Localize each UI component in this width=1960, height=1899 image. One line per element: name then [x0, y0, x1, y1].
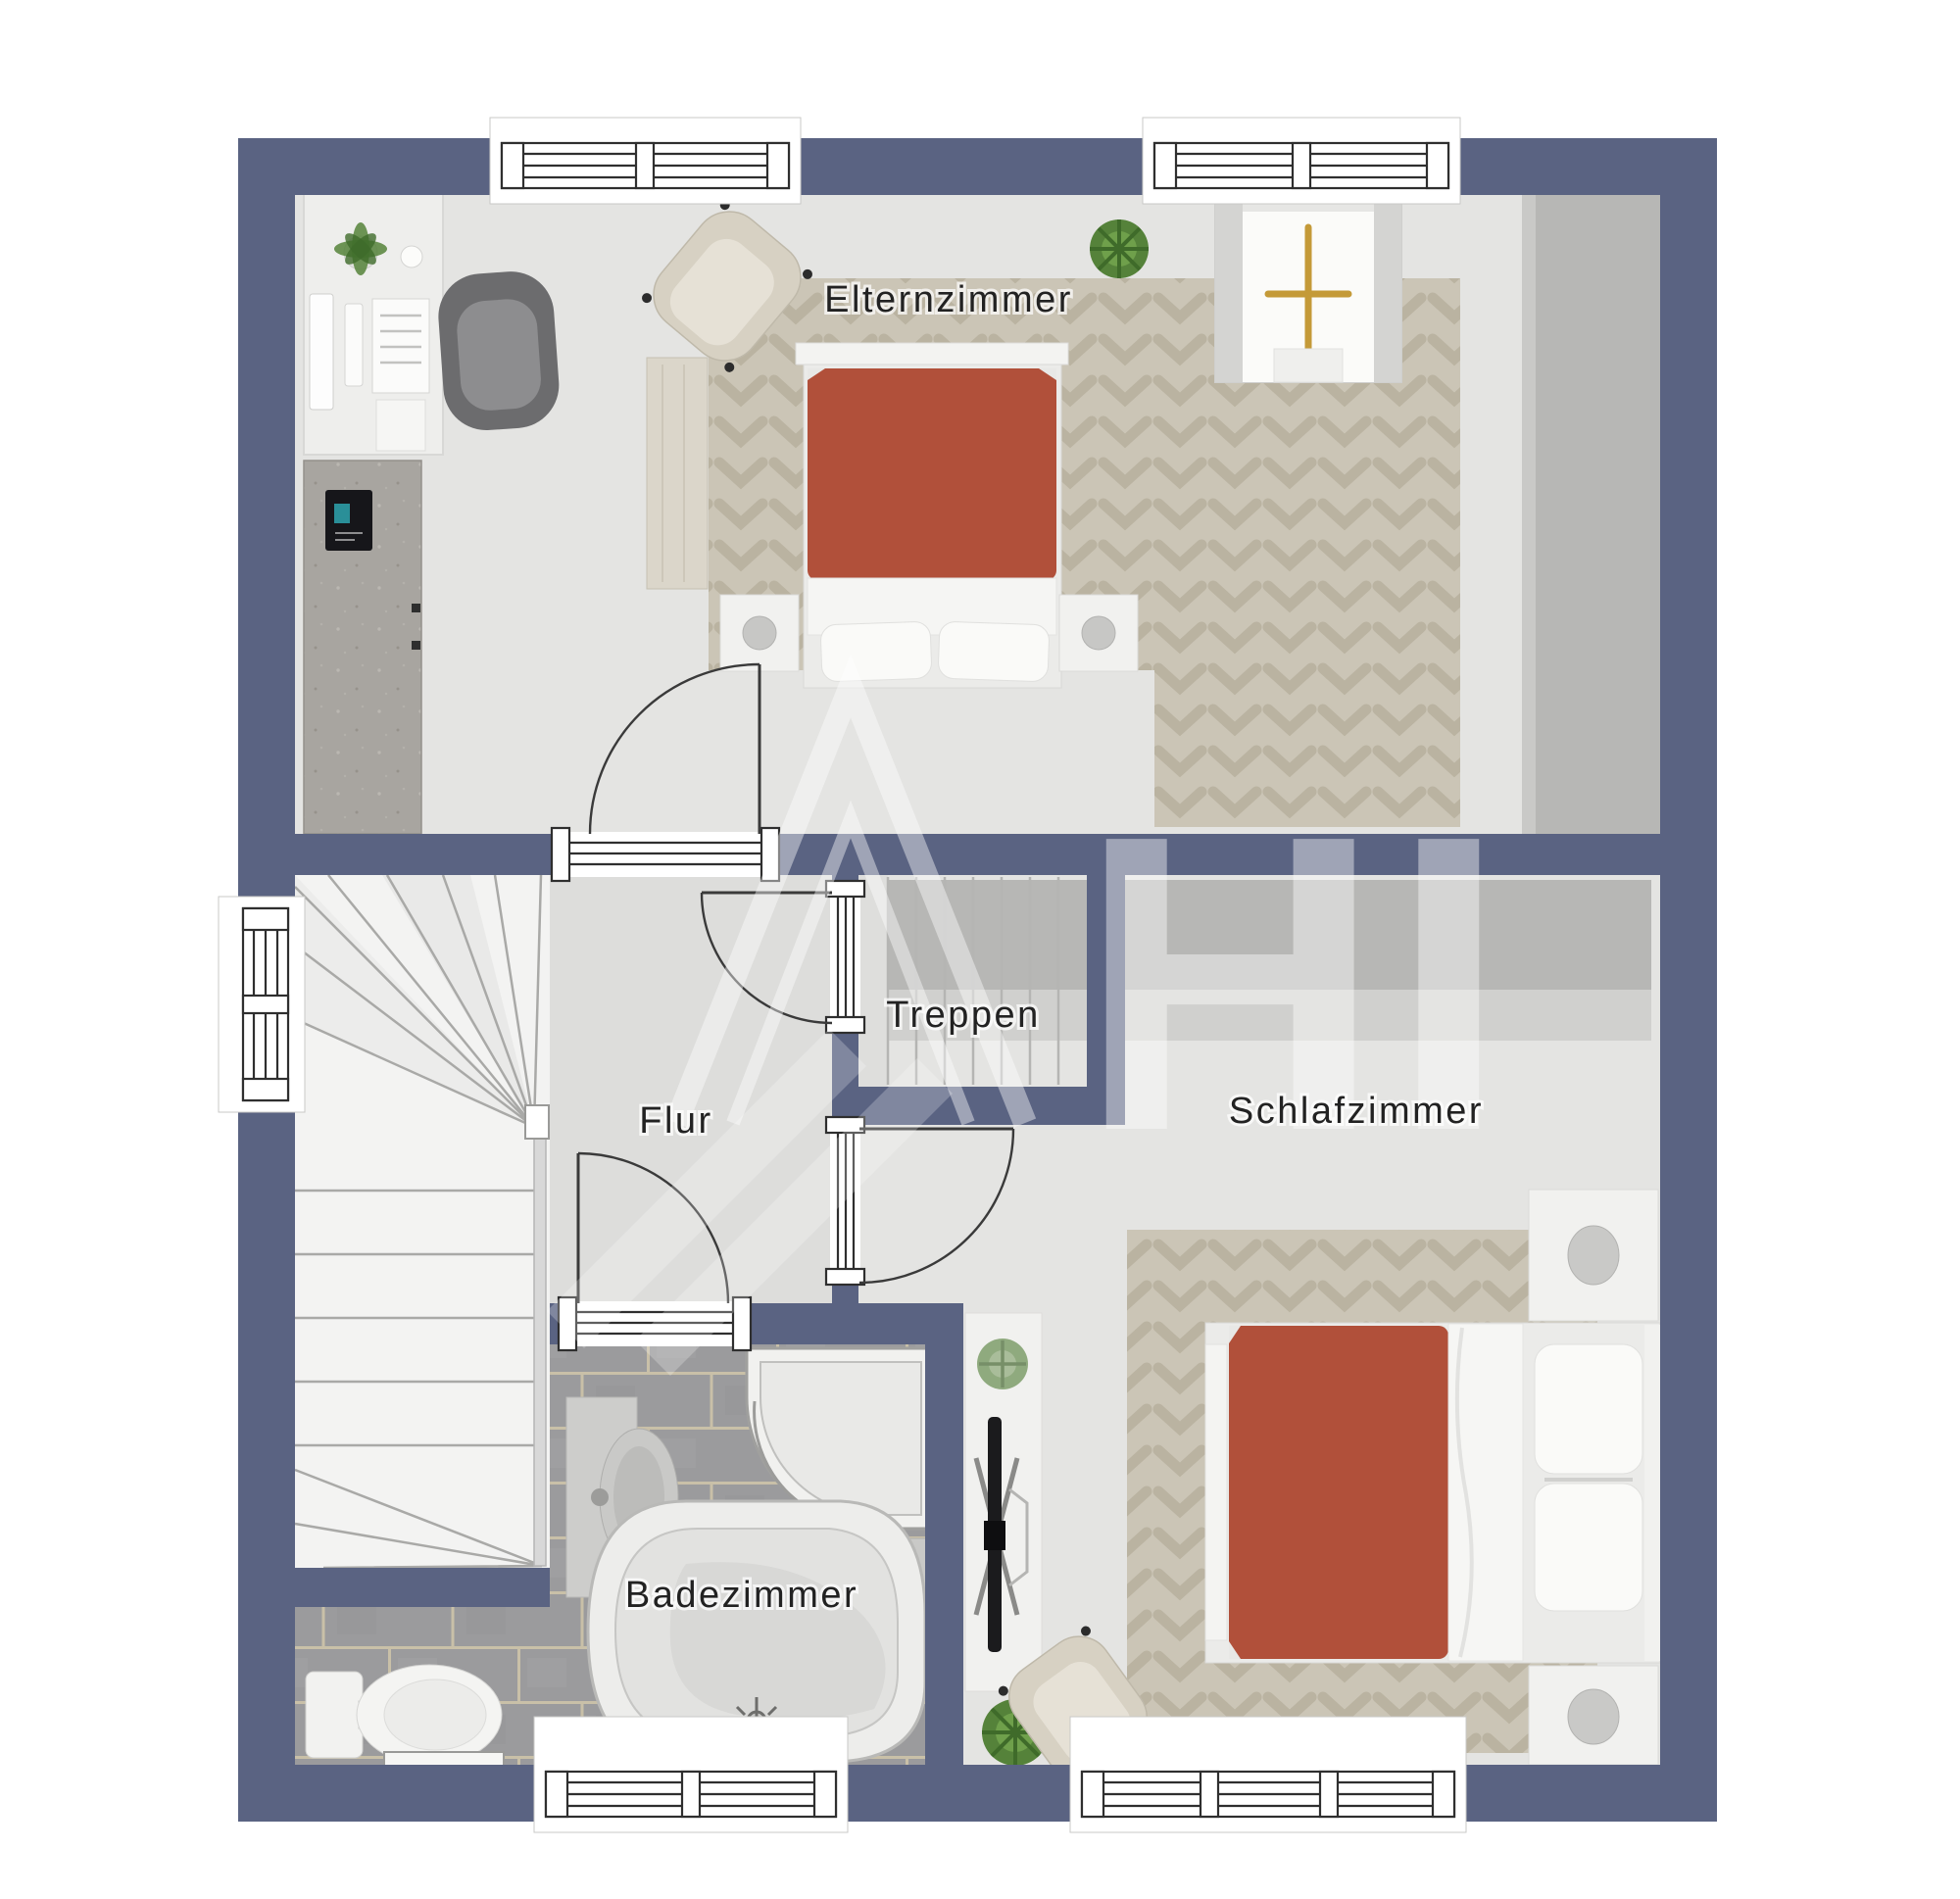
room-label-badezimmer: Badezimmer [625, 1575, 858, 1616]
wardrobe-east-highlight [1522, 195, 1536, 834]
floorplan-svg: HI Elternzimmer Treppen Flur Schlafzimme… [0, 0, 1960, 1899]
wall-stairs-badezimmer [295, 1568, 550, 1607]
desk-papers [372, 299, 429, 451]
floorplan-page: HI Elternzimmer Treppen Flur Schlafzimme… [0, 0, 1960, 1899]
wood-bench [647, 358, 708, 589]
desk-cup [401, 246, 422, 268]
book [325, 490, 372, 551]
stairs-handrail [534, 1127, 546, 1566]
window-left [219, 897, 305, 1112]
window-bottom-right [1070, 1717, 1466, 1832]
bed-elternzimmer [796, 343, 1068, 688]
bed2-footboard [1205, 1344, 1227, 1640]
window-top-left [490, 118, 801, 204]
watermark-letters: HI [1078, 749, 1515, 1219]
sink-faucet [591, 1488, 609, 1506]
lamp-sz-bottom [1568, 1689, 1619, 1744]
room-label-elternzimmer: Elternzimmer [824, 279, 1073, 320]
wall-badezimmer-east [925, 1303, 963, 1765]
crib-blanket [1274, 349, 1343, 382]
window-top-right [1143, 118, 1460, 204]
toilet [306, 1665, 502, 1765]
bed2-pillow-bottom [1535, 1484, 1642, 1611]
desk-monitor [310, 294, 333, 410]
plant-elternzimmer [1090, 219, 1149, 278]
bed2-duvet [1229, 1326, 1448, 1659]
plant-sideboard [977, 1339, 1028, 1389]
nightstand-sz-bottom [1529, 1666, 1658, 1765]
nightstand-el-left [720, 595, 799, 671]
room-label-schlafzimmer: Schlafzimmer [1229, 1091, 1484, 1132]
wall-south [238, 1765, 1717, 1822]
desk-keyboard [345, 304, 363, 386]
crib [1215, 196, 1401, 382]
tv-hub [984, 1521, 1005, 1550]
bed-schlafzimmer [1205, 1323, 1660, 1663]
nightstand-el-right [1059, 595, 1138, 671]
bed1-pillow-right [938, 621, 1050, 682]
wall-north [238, 138, 1717, 195]
bed1-headshelf [796, 343, 1068, 365]
wall-east [1660, 138, 1717, 1822]
room-label-flur: Flur [639, 1100, 712, 1142]
elternzimmer-wardrobe-east [1522, 195, 1660, 834]
bed1-pillow-left [820, 621, 932, 682]
office-chair [435, 268, 562, 433]
bed2-headboard [1644, 1325, 1660, 1661]
lamp-el-right [1082, 616, 1115, 650]
lamp-sz-top [1568, 1226, 1619, 1285]
bed1-duvet [808, 368, 1056, 580]
room-label-treppen: Treppen [886, 995, 1041, 1036]
bed2-pillow-top [1535, 1344, 1642, 1474]
stairs-newel-post [525, 1105, 549, 1139]
window-bottom-left [534, 1717, 848, 1832]
wardrobe-handle-1 [412, 604, 420, 612]
nightstand-sz-top [1529, 1190, 1658, 1321]
lamp-el-left [743, 616, 776, 650]
wardrobe-handle-2 [412, 641, 420, 650]
